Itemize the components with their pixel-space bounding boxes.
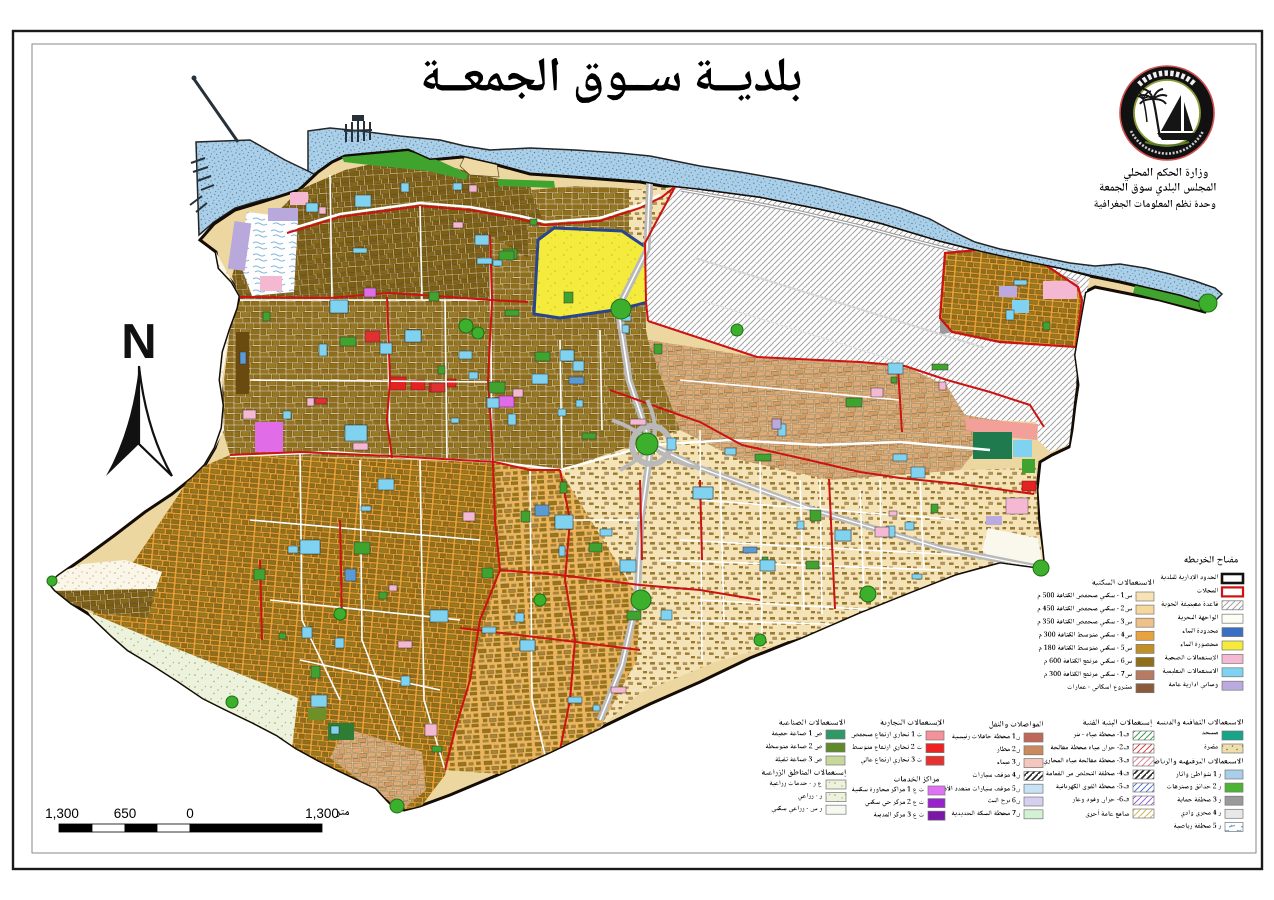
svg-text:1,300: 1,300	[45, 806, 79, 821]
svg-text:650: 650	[114, 806, 137, 821]
svg-text:0: 0	[186, 806, 194, 821]
svg-text:N: N	[121, 315, 156, 369]
svg-text:1,300: 1,300	[305, 806, 339, 821]
